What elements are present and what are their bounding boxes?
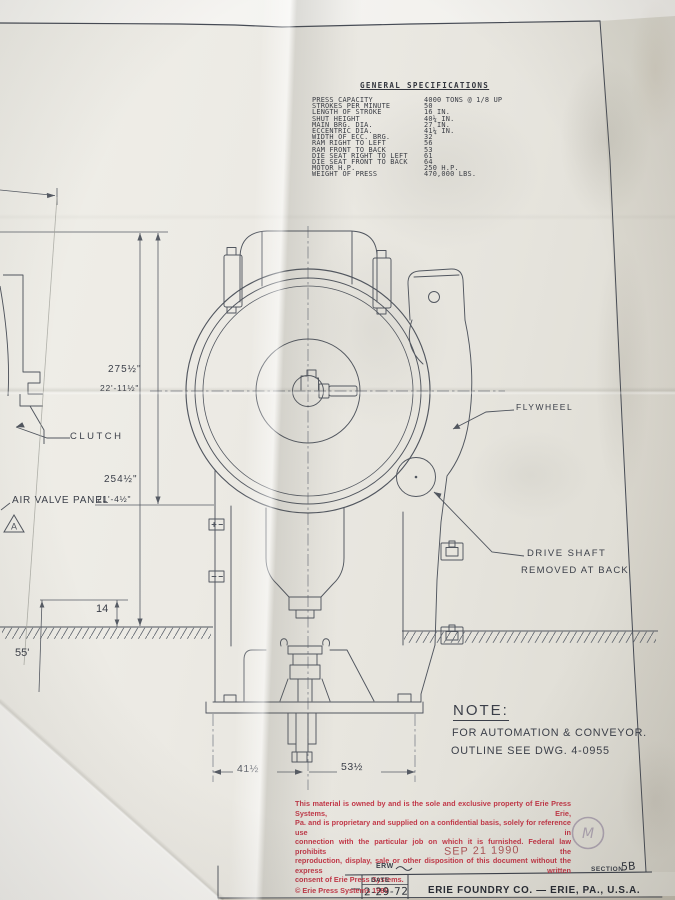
label-flywheel: FLYWHEEL: [516, 402, 573, 412]
press-machine: [186, 231, 472, 762]
title-block-date-value: 2-29-72: [364, 886, 409, 899]
dim-left-depth: 55': [15, 647, 29, 659]
label-air-valve-panel: AIR VALVE PANEL: [12, 495, 109, 506]
specs-rows: PRESS CAPACITY4000 TONS @ 1/8 UP STROKES…: [312, 97, 527, 177]
dimension-lines: [0, 188, 415, 772]
specs-title: GENERAL SPECIFICATIONS: [360, 81, 527, 90]
legal-notice: This material is owned by and is the sol…: [295, 799, 571, 895]
label-clutch: CLUTCH: [70, 431, 124, 442]
dim-pit-depth: 14: [96, 603, 108, 615]
legal-line: connection with the particular job on wh…: [295, 837, 571, 856]
spec-row: WEIGHT OF PRESS470,000 LBS.: [312, 171, 527, 177]
general-specifications-table: GENERAL SPECIFICATIONS PRESS CAPACITY400…: [312, 81, 527, 177]
dim-height-total-ft: 22'-11½": [100, 383, 139, 393]
legal-line: reproduction, display, sale or other dis…: [295, 856, 571, 875]
dim-bottom-left: 41½: [237, 763, 259, 775]
datum-a-label: A: [11, 522, 17, 532]
centerlines: [150, 226, 505, 790]
title-block-section-value: 5B: [621, 860, 636, 874]
crease-line: [24, 197, 57, 665]
legal-line: This material is owned by and is the sol…: [295, 799, 571, 818]
label-drive-shaft-1: DRIVE SHAFT: [527, 548, 606, 559]
note-heading: NOTE:: [453, 702, 509, 721]
note-line-2: OUTLINE SEE DWG. 4-0955: [451, 745, 610, 757]
datum-triangle: A: [4, 515, 24, 532]
title-block-company: ERIE FOUNDRY CO. — ERIE, PA., U.S.A.: [428, 885, 640, 896]
label-drive-shaft-2: REMOVED AT BACK: [521, 565, 629, 576]
legal-line: Pa. and is proprietary and supplied on a…: [295, 818, 571, 837]
note-line-1: FOR AUTOMATION & CONVEYOR.: [452, 727, 647, 739]
ram: [266, 508, 344, 618]
dim-bottom-right: 53½: [341, 761, 363, 773]
bolster-and-base: [206, 639, 423, 762]
clutch-partial-view: [0, 275, 44, 444]
date-stamp: SEP 21 1990: [444, 844, 520, 858]
title-block-erw: ERW: [376, 863, 394, 870]
dim-height-upper-in: 254½": [104, 474, 138, 485]
inspection-mark: M: [573, 818, 604, 849]
inspection-mark-label: M: [582, 826, 594, 842]
title-block-section-label: SECTION: [591, 866, 623, 873]
blueprint-photo: A M GENERAL SPECIFICATIONS PRESS CAPACIT…: [0, 0, 675, 900]
dim-height-total-in: 275½": [108, 364, 142, 375]
legal-line: consent of Erie Press Systems.: [295, 875, 571, 885]
title-block-date-label: DATE: [371, 877, 390, 884]
motor: [224, 231, 391, 314]
